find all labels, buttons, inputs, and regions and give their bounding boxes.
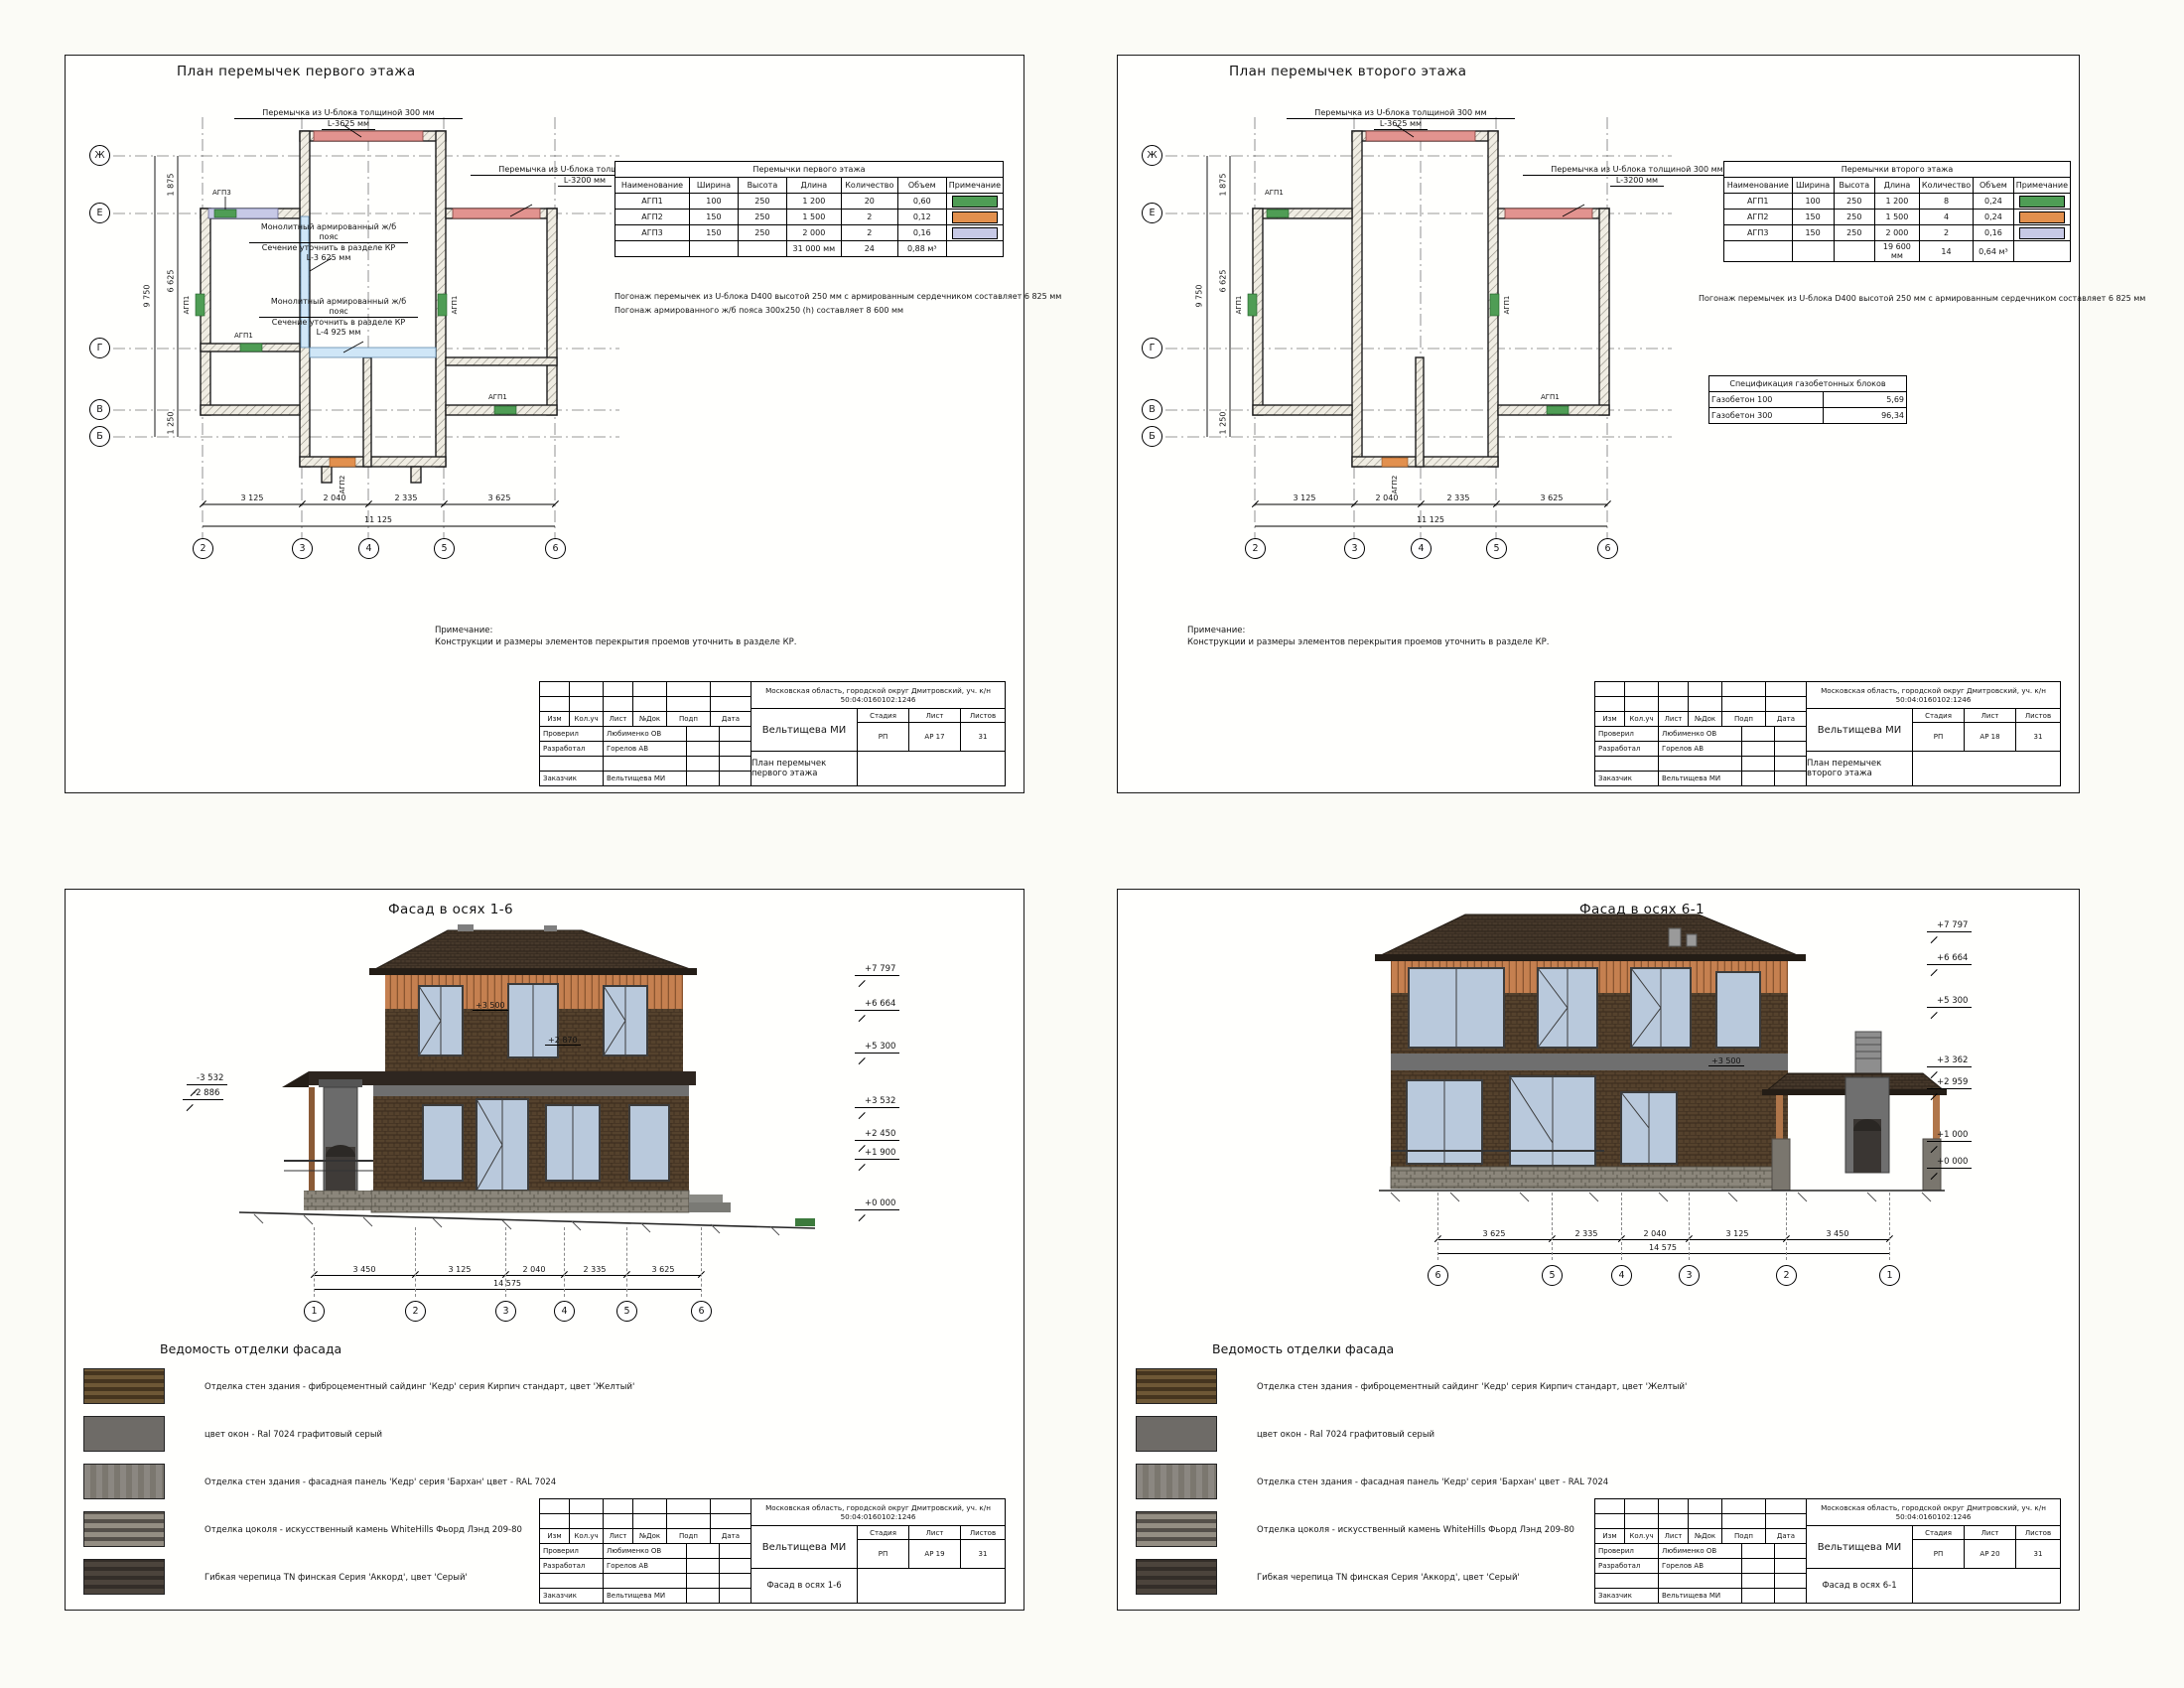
dim-value: 2 335 bbox=[584, 1265, 607, 1274]
dim-total: 14 575 bbox=[493, 1279, 521, 1288]
title-block-left: ИзмКол.учЛист №ДокПодпДата ПроверилЛюбим… bbox=[540, 682, 751, 785]
legend-swatch-agp2 bbox=[2019, 211, 2065, 223]
table-row: АГП1100250 1 200200,60 bbox=[615, 194, 1004, 210]
table-cell: 250 bbox=[1834, 194, 1874, 210]
table-cell: АГП1 bbox=[615, 194, 690, 210]
axis-bubble: В bbox=[1142, 399, 1162, 420]
table-cell: 19 600 мм bbox=[1874, 241, 1919, 262]
finish-swatch-siding-brick bbox=[1136, 1368, 1217, 1404]
table-title-row: Спецификация газобетонных блоков bbox=[1709, 376, 1907, 392]
table-cell: 250 bbox=[738, 210, 786, 225]
title-block-cell: Дата bbox=[711, 712, 751, 726]
dim-value: 3 625 bbox=[652, 1265, 675, 1274]
title-block-cell bbox=[1625, 1499, 1659, 1513]
title-block-cell bbox=[1742, 1559, 1775, 1573]
dim-graphic bbox=[314, 1227, 315, 1297]
table-cell: Перемычки первого этажа bbox=[615, 162, 1004, 178]
title-block-cell bbox=[1625, 697, 1659, 711]
axis-bubble: 1 bbox=[304, 1301, 325, 1322]
title-block-cell bbox=[720, 1559, 751, 1573]
sheet-title: План перемычек второго этажа bbox=[1229, 64, 1466, 79]
finish-item: Отделка стен здания - фасадная панель 'К… bbox=[205, 1477, 556, 1487]
title-block-cell bbox=[711, 1514, 751, 1528]
title-block-cell: 31 bbox=[961, 1540, 1005, 1568]
title-block-cell bbox=[1742, 772, 1775, 785]
title-block-cell: №Док bbox=[633, 712, 667, 726]
title-block-cell bbox=[687, 1544, 720, 1558]
elevation-mark: -2 886 bbox=[183, 1089, 223, 1100]
title-block-cell bbox=[1775, 1559, 1807, 1573]
table-cell bbox=[946, 225, 1003, 241]
dim-value: 3 625 bbox=[488, 493, 511, 502]
finish-swatch-socle-stone bbox=[1136, 1511, 1217, 1547]
dim-value: 1 875 bbox=[1219, 174, 1228, 197]
axis-bubble: Ж bbox=[1142, 145, 1162, 166]
dim-value: 2 040 bbox=[324, 493, 346, 502]
table-cell: 2 bbox=[1919, 225, 1973, 241]
table-cell bbox=[946, 194, 1003, 210]
elevation-mark: +5 300 bbox=[855, 1043, 899, 1054]
table-cell: 250 bbox=[738, 225, 786, 241]
table-cell: 150 bbox=[1792, 225, 1834, 241]
dim-graphic bbox=[1621, 1193, 1622, 1260]
title-block-cell: Подп bbox=[667, 712, 711, 726]
table-cell: 24 bbox=[841, 241, 897, 257]
lintel-label: АГП1 bbox=[451, 296, 459, 315]
drawing-name: Фасад в осях 6-1 bbox=[1807, 1569, 1913, 1603]
axis-bubble: 6 bbox=[691, 1301, 712, 1322]
finish-schedule-title: Ведомость отделки фасада bbox=[160, 1341, 341, 1356]
table-cell: 1 500 bbox=[1874, 210, 1919, 225]
finish-swatch-siding-brick bbox=[83, 1368, 165, 1404]
dim-value: 3 625 bbox=[1483, 1229, 1506, 1238]
elevation-mark: -3 532 bbox=[187, 1074, 227, 1085]
table-cell: 0,24 bbox=[1974, 210, 2014, 225]
title-block-cell bbox=[720, 727, 751, 741]
title-block-cell: Разработал bbox=[1595, 1559, 1659, 1573]
table-cell: 1 200 bbox=[1874, 194, 1919, 210]
axis-bubble: 2 bbox=[1776, 1265, 1797, 1286]
title-block-cell: Кол.уч bbox=[1625, 1529, 1659, 1543]
title-block-cell bbox=[1722, 697, 1766, 711]
table-cell: Длина bbox=[1874, 178, 1919, 194]
dim-value: 3 125 bbox=[1726, 1229, 1749, 1238]
axis-bubble: 3 bbox=[1679, 1265, 1700, 1286]
title-block-cell bbox=[1775, 1544, 1807, 1558]
table-title-row: Перемычки первого этажа bbox=[615, 162, 1004, 178]
dim-total: 9 750 bbox=[1195, 285, 1204, 308]
axis-bubble: 5 bbox=[616, 1301, 637, 1322]
level-label: +2 870 bbox=[545, 1036, 581, 1046]
dim-line bbox=[314, 1275, 701, 1276]
table-cell: Перемычки второго этажа bbox=[1724, 162, 2071, 178]
title-block-cell bbox=[687, 757, 720, 771]
title-block-cell bbox=[687, 742, 720, 756]
title-block-right: Московская область, городской округ Дмит… bbox=[751, 682, 1005, 785]
title-block-cell: Любименко ОВ bbox=[604, 1544, 687, 1558]
axis-bubble: Б bbox=[89, 426, 110, 447]
title-block-cell: Листов bbox=[2016, 1526, 2060, 1539]
table-cell: 0,12 bbox=[897, 210, 946, 225]
title-block-cell bbox=[687, 1589, 720, 1603]
finish-swatch-window-color bbox=[83, 1416, 165, 1452]
axis-bubble: 2 bbox=[193, 538, 213, 559]
table-cell bbox=[946, 210, 1003, 225]
title-block-cell: Горелов АВ bbox=[1659, 742, 1742, 756]
finish-item: Отделка цоколя - искусственный камень Wh… bbox=[205, 1525, 522, 1535]
table-row: Газобетон 30096,34 bbox=[1709, 408, 1907, 424]
title-block-cell: Подп bbox=[1722, 1529, 1766, 1543]
table-total-row: 31 000 мм240,88 м³ bbox=[615, 241, 1004, 257]
dim-graphic bbox=[415, 1227, 416, 1297]
title-block-cell bbox=[1742, 757, 1775, 771]
dim-value: 2 335 bbox=[395, 493, 418, 502]
title-block-cell bbox=[1689, 1514, 1722, 1528]
title-block-cell bbox=[1766, 697, 1806, 711]
lintel-agp2-mark bbox=[330, 458, 355, 467]
axis-bubble: 5 bbox=[1542, 1265, 1563, 1286]
table-cell: 2 bbox=[841, 210, 897, 225]
table-cell: Количество bbox=[841, 178, 897, 194]
title-block-cell: Любименко ОВ bbox=[1659, 727, 1742, 741]
table-cell: 0,88 м³ bbox=[897, 241, 946, 257]
remark-text: Конструкции и размеры элементов перекрыт… bbox=[435, 637, 796, 647]
table-cell: Спецификация газобетонных блоков bbox=[1709, 376, 1907, 392]
title-block-cell bbox=[570, 697, 604, 711]
title-block-cell bbox=[570, 1514, 604, 1528]
title-block-cell: Лист bbox=[1659, 1529, 1689, 1543]
gasconcrete-spec-table: Спецификация газобетонных блоков Газобет… bbox=[1708, 375, 1907, 424]
dim-graphic bbox=[564, 1227, 565, 1297]
title-block-cell bbox=[720, 1589, 751, 1603]
table-cell: Примечание bbox=[946, 178, 1003, 194]
dim-value: 2 040 bbox=[523, 1265, 546, 1274]
title-block-cell bbox=[1595, 697, 1625, 711]
dim-graphic bbox=[701, 1227, 702, 1297]
title-block-cell: Разработал bbox=[1595, 742, 1659, 756]
project-address: Московская область, городской округ Дмит… bbox=[1807, 1499, 2060, 1526]
title-block-cell bbox=[1595, 1499, 1625, 1513]
table-cell: 150 bbox=[689, 210, 738, 225]
title-block-cell: Стадия bbox=[858, 709, 909, 722]
title-block: ИзмКол.учЛист №ДокПодпДата ПроверилЛюбим… bbox=[1594, 681, 2061, 786]
title-block-cell bbox=[720, 1574, 751, 1588]
dim-value: 2 040 bbox=[1644, 1229, 1667, 1238]
axis-bubble: 5 bbox=[434, 538, 455, 559]
dim-value: 6 625 bbox=[167, 270, 176, 293]
sheet-number: АР 20 bbox=[1965, 1540, 2016, 1568]
title-block-cell bbox=[1625, 1514, 1659, 1528]
title-block-cell bbox=[667, 1514, 711, 1528]
table-cell: 5,69 bbox=[1824, 392, 1907, 408]
finish-item: Отделка цоколя - искусственный камень Wh… bbox=[1257, 1525, 1574, 1535]
title-block-cell bbox=[711, 697, 751, 711]
title-block-cell: №Док bbox=[1689, 1529, 1722, 1543]
title-block-cell: Изм bbox=[540, 712, 570, 726]
title-block-cell bbox=[667, 1499, 711, 1513]
table-cell: Объем bbox=[1974, 178, 2014, 194]
table-cell: 8 bbox=[1919, 194, 1973, 210]
table-header-row: НаименованиеШирина ВысотаДлина Количеств… bbox=[1724, 178, 2071, 194]
table-cell: Объем bbox=[897, 178, 946, 194]
dim-value: 3 450 bbox=[353, 1265, 376, 1274]
dim-total: 11 125 bbox=[1417, 515, 1444, 524]
title-block-cell bbox=[1775, 772, 1807, 785]
title-block-cell: Заказчик bbox=[540, 1589, 604, 1603]
title-block-cell bbox=[667, 697, 711, 711]
title-block-cell: Лист bbox=[604, 712, 633, 726]
title-block-cell: РП bbox=[858, 723, 909, 751]
title-block-cell: Кол.уч bbox=[570, 712, 604, 726]
finish-swatch-shingles bbox=[83, 1559, 165, 1595]
lintel-table-floor2: Перемычки второго этажа НаименованиеШири… bbox=[1723, 161, 2071, 262]
title-block-cell bbox=[1775, 1589, 1807, 1603]
table-cell: Газобетон 100 bbox=[1709, 392, 1824, 408]
axis-bubble: 4 bbox=[1411, 538, 1432, 559]
sheet-plan-floor1: План перемычек первого этажа bbox=[65, 55, 1024, 793]
dim-graphic bbox=[1437, 1193, 1438, 1260]
finish-item: Отделка стен здания - фасадная панель 'К… bbox=[1257, 1477, 1608, 1487]
title-block-cell bbox=[720, 757, 751, 771]
table-cell: 0,16 bbox=[1974, 225, 2014, 241]
table-cell bbox=[2013, 194, 2070, 210]
sheet-facade-6-1: Фасад в осях 6-1 bbox=[1117, 889, 2080, 1611]
table-row: Газобетон 1005,69 bbox=[1709, 392, 1907, 408]
axis-bubble: 5 bbox=[1486, 538, 1507, 559]
table-cell bbox=[689, 241, 738, 257]
title-block-cell bbox=[1595, 757, 1659, 771]
title-block-cell bbox=[604, 1514, 633, 1528]
title-block-cell bbox=[633, 697, 667, 711]
title-block-cell: Заказчик bbox=[1595, 1589, 1659, 1603]
dim-value: 6 625 bbox=[1219, 270, 1228, 293]
title-block-cell bbox=[720, 742, 751, 756]
legend-swatch-agp3 bbox=[952, 227, 998, 239]
axis-bubble: 3 bbox=[1344, 538, 1365, 559]
title-block-cell bbox=[633, 1514, 667, 1528]
table-cell: Примечание bbox=[2013, 178, 2070, 194]
lintel-label: АГП1 bbox=[234, 332, 253, 340]
finish-item: Гибкая черепица TN финская Серия 'Аккорд… bbox=[1257, 1573, 1520, 1583]
title-block-cell: Любименко ОВ bbox=[604, 727, 687, 741]
axis-bubble: 6 bbox=[1597, 538, 1618, 559]
title-block-cell bbox=[1689, 1499, 1722, 1513]
dim-total: 11 125 bbox=[364, 515, 392, 524]
title-block-cell bbox=[570, 682, 604, 696]
table-cell bbox=[1724, 241, 1793, 262]
table-cell: 96,34 bbox=[1824, 408, 1907, 424]
title-block-cell bbox=[1595, 1514, 1625, 1528]
dim-line bbox=[1437, 1253, 1889, 1254]
table-cell bbox=[615, 241, 690, 257]
dim-value: 1 875 bbox=[167, 174, 176, 197]
lintel-label: АГП1 bbox=[488, 393, 507, 401]
axis-bubble: Е bbox=[1142, 203, 1162, 223]
title-block-cell: Стадия bbox=[858, 1526, 909, 1539]
title-block-cell bbox=[720, 772, 751, 785]
title-block-cell: Лист bbox=[909, 709, 961, 722]
title-block-cell bbox=[1775, 757, 1807, 771]
table-cell: 100 bbox=[689, 194, 738, 210]
sheet-number: АР 19 bbox=[909, 1540, 961, 1568]
dim-value: 3 125 bbox=[1294, 493, 1316, 502]
title-block-cell: Изм bbox=[540, 1529, 570, 1543]
finish-item: Гибкая черепица TN финская Серия 'Аккорд… bbox=[205, 1573, 468, 1583]
title-block-cell: Проверил bbox=[1595, 727, 1659, 741]
title-block-cell bbox=[604, 682, 633, 696]
table-cell: Наименование bbox=[615, 178, 690, 194]
title-block-cell bbox=[1742, 727, 1775, 741]
axis-bubble: Г bbox=[89, 338, 110, 358]
table-cell: 150 bbox=[1792, 210, 1834, 225]
lintel-label: АГП1 bbox=[183, 296, 191, 315]
sheet-title: Фасад в осях 1-6 bbox=[388, 902, 513, 917]
title-block: ИзмКол.учЛист №ДокПодпДата ПроверилЛюбим… bbox=[539, 681, 1006, 786]
table-cell: АГП3 bbox=[1724, 225, 1793, 241]
title-block-cell bbox=[633, 682, 667, 696]
table-row: АГП2150250 1 50020,12 bbox=[615, 210, 1004, 225]
title-block-cell: 31 bbox=[961, 723, 1005, 751]
elevation-mark: +5 300 bbox=[1927, 997, 1972, 1008]
elevation-mark: +2 959 bbox=[1927, 1078, 1972, 1089]
axis-bubble: Г bbox=[1142, 338, 1162, 358]
title-block-cell: Листов bbox=[961, 1526, 1005, 1539]
elevation-mark: +1 000 bbox=[1927, 1131, 1972, 1142]
callout-belt-1: Монолитный армированный ж/б поясСечение … bbox=[249, 222, 408, 263]
title-block: ИзмКол.учЛист №ДокПодпДата ПроверилЛюбим… bbox=[1594, 1498, 2061, 1604]
elevation-mark: +2 450 bbox=[855, 1130, 899, 1141]
dim-total: 9 750 bbox=[143, 285, 152, 308]
axis-bubble: 4 bbox=[1611, 1265, 1632, 1286]
title-block-cell bbox=[687, 1559, 720, 1573]
drawing-name: Фасад в осях 1-6 bbox=[751, 1569, 858, 1603]
title-block-cell bbox=[1742, 1589, 1775, 1603]
title-block-cell bbox=[1722, 1499, 1766, 1513]
elevation-mark: +6 664 bbox=[855, 1000, 899, 1011]
title-block-cell bbox=[1775, 742, 1807, 756]
axis-bubble: 3 bbox=[292, 538, 313, 559]
title-block-cell bbox=[540, 1574, 604, 1588]
dim-graphic bbox=[1786, 1193, 1787, 1260]
title-block-cell bbox=[540, 1514, 570, 1528]
table-row: АГП1100250 1 20080,24 bbox=[1724, 194, 2071, 210]
table-cell: Количество bbox=[1919, 178, 1973, 194]
finish-swatch-socle-stone bbox=[83, 1511, 165, 1547]
table-cell: 250 bbox=[1834, 210, 1874, 225]
title-block-cell bbox=[711, 682, 751, 696]
table-cell: Длина bbox=[786, 178, 841, 194]
title-block-cell: Дата bbox=[1766, 712, 1806, 726]
title-block-cell bbox=[1766, 1499, 1806, 1513]
drawing-name: План перемычек первого этажа bbox=[751, 752, 858, 785]
note-line: Погонаж перемычек из U-блока D400 высото… bbox=[1699, 294, 2145, 303]
object-name: Вельтищева МИ bbox=[751, 1526, 858, 1568]
table-cell bbox=[738, 241, 786, 257]
title-block-cell: Лист bbox=[909, 1526, 961, 1539]
title-block-cell: Листов bbox=[2016, 709, 2060, 722]
table-cell: 2 bbox=[841, 225, 897, 241]
title-block-cell: Дата bbox=[711, 1529, 751, 1543]
dim-value: 3 450 bbox=[1827, 1229, 1849, 1238]
axis-bubble: 4 bbox=[358, 538, 379, 559]
title-block-cell: РП bbox=[1913, 723, 1965, 751]
table-cell: 100 bbox=[1792, 194, 1834, 210]
title-block-cell bbox=[720, 1544, 751, 1558]
remark-text: Конструкции и размеры элементов перекрыт… bbox=[1187, 637, 1549, 647]
title-block-cell bbox=[1659, 757, 1742, 771]
table-cell bbox=[1792, 241, 1834, 262]
title-block-cell bbox=[1722, 1514, 1766, 1528]
level-label: +3 500 bbox=[473, 1001, 508, 1011]
legend-swatch-agp3 bbox=[2019, 227, 2065, 239]
table-cell: 0,64 м³ bbox=[1974, 241, 2014, 262]
lintel-label: АГП3 bbox=[212, 189, 231, 197]
title-block: ИзмКол.учЛист №ДокПодпДата ПроверилЛюбим… bbox=[539, 1498, 1006, 1604]
dim-value: 3 125 bbox=[449, 1265, 472, 1274]
table-row: АГП3150250 2 00020,16 bbox=[1724, 225, 2071, 241]
project-address: Московская область, городской округ Дмит… bbox=[751, 1499, 1005, 1526]
sheet-plan-floor2: План перемычек второго этажа bbox=[1117, 55, 2080, 793]
callout-ublock-top: Перемычка из U-блока толщиной 300 ммL-36… bbox=[1287, 108, 1515, 130]
table-cell bbox=[2013, 225, 2070, 241]
title-block-cell bbox=[1659, 1499, 1689, 1513]
title-block-cell bbox=[1742, 1574, 1775, 1588]
title-block-cell: Вельтищева МИ bbox=[604, 772, 687, 785]
lintel-label: АГП2 bbox=[1391, 476, 1399, 494]
axis-bubble: 1 bbox=[1879, 1265, 1900, 1286]
title-block-cell: Любименко ОВ bbox=[1659, 1544, 1742, 1558]
table-cell: АГП3 bbox=[615, 225, 690, 241]
title-block-cell: Подп bbox=[667, 1529, 711, 1543]
object-name: Вельтищева МИ bbox=[1807, 1526, 1913, 1568]
title-block-cell: Лист bbox=[604, 1529, 633, 1543]
title-block-cell bbox=[687, 772, 720, 785]
facade-drawing bbox=[1371, 905, 1947, 1222]
finish-item: Отделка стен здания - фиброцементный сай… bbox=[1257, 1382, 1687, 1392]
finish-item: цвет окон - Ral 7024 графитовый серый bbox=[205, 1430, 382, 1440]
title-block-cell: №Док bbox=[633, 1529, 667, 1543]
axis-bubble: 2 bbox=[1245, 538, 1266, 559]
drawing-name: План перемычек второго этажа bbox=[1807, 752, 1913, 785]
drawing-page: План перемычек первого этажа bbox=[0, 0, 2184, 1688]
lintel-label: АГП1 bbox=[1235, 296, 1243, 315]
finish-item: цвет окон - Ral 7024 графитовый серый bbox=[1257, 1430, 1434, 1440]
callout-ublock-right: Перемычка из U-блока толщиной 300 ммL-32… bbox=[1523, 165, 1751, 187]
table-row: АГП3150250 2 00020,16 bbox=[615, 225, 1004, 241]
note-line: Погонаж перемычек из U-блока D400 высото… bbox=[614, 292, 1061, 301]
table-header-row: НаименованиеШирина ВысотаДлина Количеств… bbox=[615, 178, 1004, 194]
sheet-number: АР 17 bbox=[909, 723, 961, 751]
level-label: +3 500 bbox=[1708, 1056, 1744, 1066]
finish-swatch-shingles bbox=[1136, 1559, 1217, 1595]
table-cell: 0,24 bbox=[1974, 194, 2014, 210]
table-row: АГП2150250 1 50040,24 bbox=[1724, 210, 2071, 225]
title-block-cell bbox=[633, 1499, 667, 1513]
title-block-cell: Вельтищева МИ bbox=[604, 1589, 687, 1603]
title-block-cell bbox=[604, 1574, 687, 1588]
title-block-cell: Стадия bbox=[1913, 709, 1965, 722]
table-cell: Высота bbox=[1834, 178, 1874, 194]
title-block-cell bbox=[1689, 682, 1722, 696]
title-block-cell: Вельтищева МИ bbox=[1659, 1589, 1742, 1603]
axis-bubble: Б bbox=[1142, 426, 1162, 447]
axis-bubble: 3 bbox=[495, 1301, 516, 1322]
title-block-cell: Лист bbox=[1659, 712, 1689, 726]
dim-line bbox=[1437, 1239, 1889, 1240]
title-block-cell bbox=[1766, 1514, 1806, 1528]
lintel-label: АГП1 bbox=[1265, 189, 1284, 197]
sheet-number: АР 18 bbox=[1965, 723, 2016, 751]
